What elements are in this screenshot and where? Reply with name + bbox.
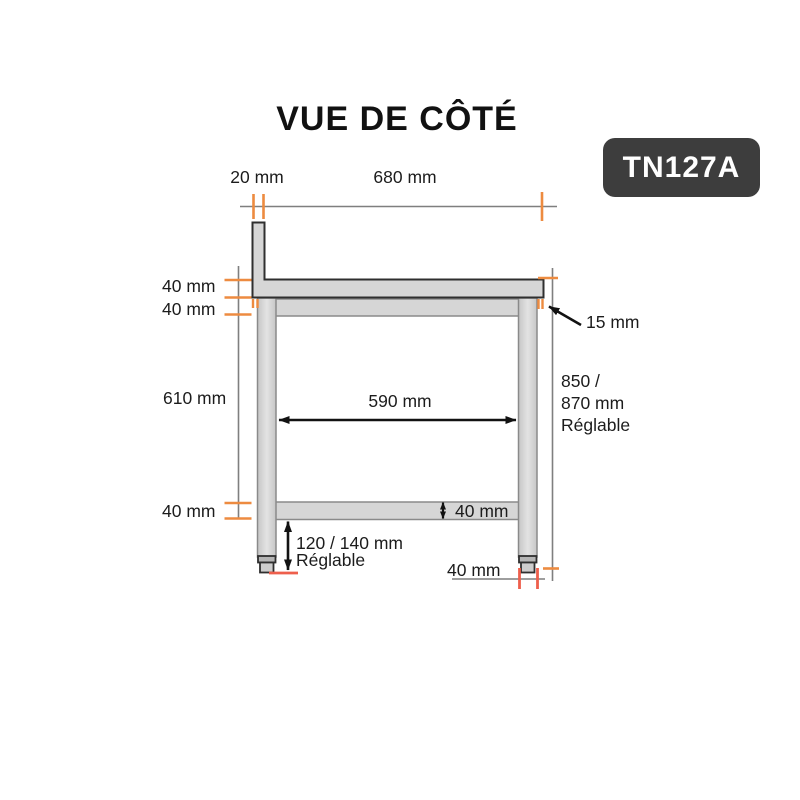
- dim-leg-width: 40 mm: [447, 560, 500, 580]
- dim-inner-width: 590 mm: [366, 391, 434, 411]
- overhang-pointer-arrow: [549, 307, 581, 326]
- dim-top-overhang: 15 mm: [586, 312, 639, 332]
- left-leg: [258, 298, 277, 557]
- diagram-canvas: VUE DE CÔTÉ TN127A: [0, 0, 800, 800]
- dim-height-line2: 870 mm: [561, 392, 624, 414]
- dim-upstand-width: 20 mm: [226, 167, 288, 187]
- dim-foot-height-line2: Réglable: [296, 550, 365, 570]
- dim-shelf-thickness-left: 40 mm: [162, 501, 215, 521]
- right-leg: [519, 298, 538, 557]
- dim-top-thickness: 40 mm: [162, 276, 215, 296]
- right-foot: [519, 556, 537, 573]
- dim-top-length: 680 mm: [371, 167, 439, 187]
- dim-shelf-thickness: 40 mm: [455, 501, 508, 521]
- dim-frame-rail-height: 40 mm: [162, 299, 215, 319]
- dim-height-line3: Réglable: [561, 414, 630, 436]
- dim-leg-clearance-height: 610 mm: [163, 388, 226, 408]
- frame-rail: [276, 299, 520, 316]
- tabletop-with-upstand: [253, 223, 544, 298]
- dim-height-line1: 850 /: [561, 370, 600, 392]
- left-foot: [258, 556, 276, 573]
